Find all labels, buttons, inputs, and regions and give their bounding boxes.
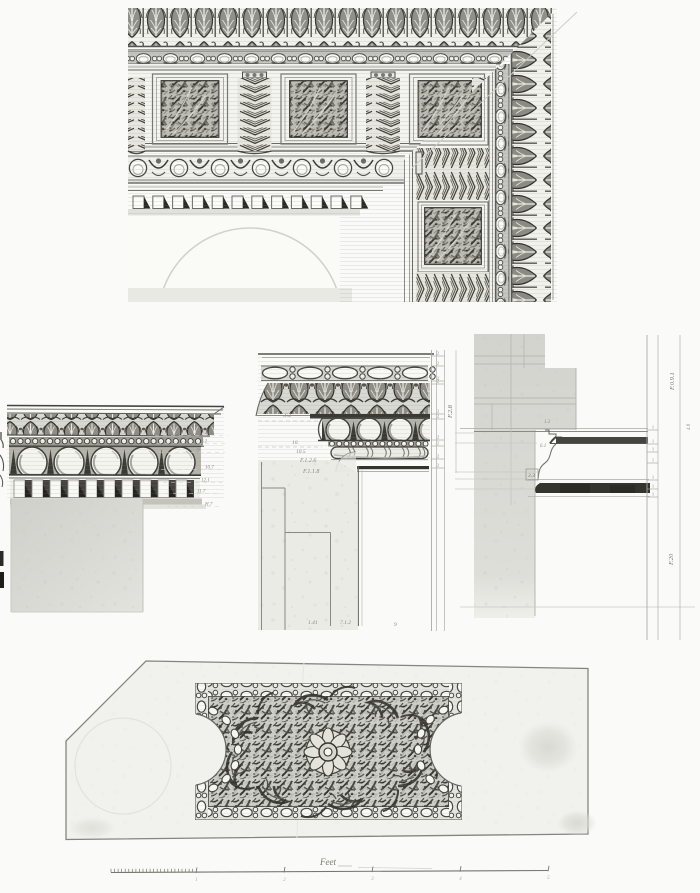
svg-text:2: 2 xyxy=(437,361,439,366)
svg-text:2: 2 xyxy=(437,441,439,446)
svg-text:9: 9 xyxy=(394,622,397,628)
svg-text:6.1: 6.1 xyxy=(201,440,207,445)
svg-text:2: 2 xyxy=(437,351,439,356)
svg-text:2: 2 xyxy=(437,463,439,468)
svg-text:1: 1 xyxy=(652,475,654,480)
svg-text:F.2.8: F.2.8 xyxy=(447,404,454,419)
svg-text:1: 1 xyxy=(652,458,654,463)
svg-text:1: 1 xyxy=(652,447,654,452)
svg-text:F.0.9.1: F.0.9.1 xyxy=(669,372,676,391)
svg-text:4.8: 4.8 xyxy=(687,423,692,430)
svg-text:10.: 10. xyxy=(292,440,299,446)
svg-text:12.1: 12.1 xyxy=(201,479,210,484)
svg-text:2: 2 xyxy=(437,435,439,440)
svg-text:2: 2 xyxy=(437,379,439,384)
svg-text:10.5: 10.5 xyxy=(296,449,306,455)
svg-text:Feet: Feet xyxy=(319,857,336,867)
svg-text:11.7: 11.7 xyxy=(197,490,206,495)
svg-text:2: 2 xyxy=(437,414,439,419)
svg-text:10.7: 10.7 xyxy=(205,466,214,471)
svg-text:1: 1 xyxy=(652,492,654,497)
svg-text:2: 2 xyxy=(437,454,439,459)
svg-text:2: 2 xyxy=(283,877,286,883)
svg-text:4: 4 xyxy=(459,875,462,882)
svg-text:7.1.2: 7.1.2 xyxy=(340,620,351,626)
svg-text:6.1: 6.1 xyxy=(540,444,546,449)
svg-text:H.7: H.7 xyxy=(204,503,213,508)
svg-text:1.41: 1.41 xyxy=(308,619,318,626)
svg-text:1: 1 xyxy=(652,425,654,430)
svg-text:F.1.1.8: F.1.1.8 xyxy=(302,469,319,475)
svg-text:3: 3 xyxy=(370,876,374,882)
svg-text:1: 1 xyxy=(652,484,654,489)
svg-text:F.20: F.20 xyxy=(668,553,675,566)
svg-text:4.8: 4.8 xyxy=(205,432,212,437)
svg-text:1: 1 xyxy=(652,439,654,444)
svg-text:1.2: 1.2 xyxy=(544,420,551,425)
svg-text:1: 1 xyxy=(195,877,198,883)
svg-text:5: 5 xyxy=(547,875,550,881)
svg-text:.F.2: .F.2 xyxy=(283,413,291,419)
svg-text:3.3: 3.3 xyxy=(527,473,535,479)
svg-text:F.1.2.6: F.1.2.6 xyxy=(299,458,316,464)
